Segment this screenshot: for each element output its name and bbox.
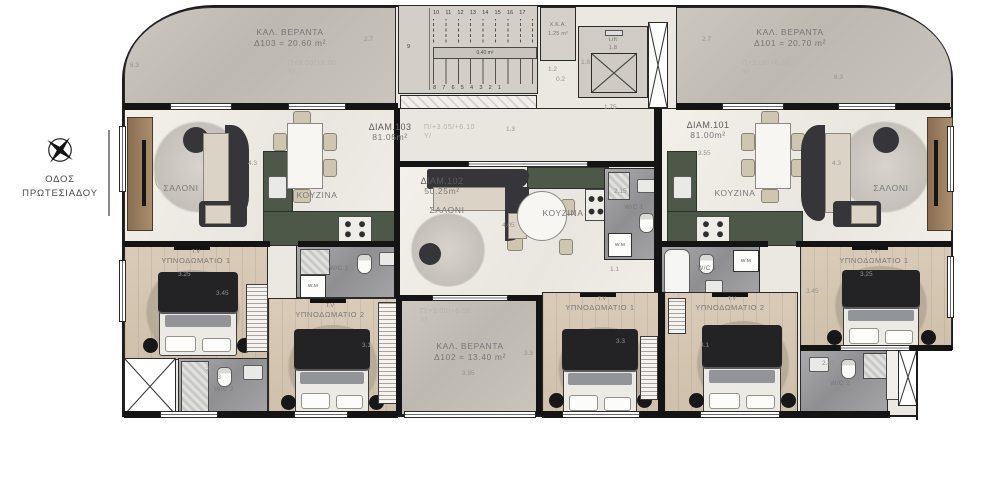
stair-landing-line — [429, 8, 430, 90]
lift-dim-side: 1.8 — [581, 59, 590, 66]
room-label-wc1: W/C 1 — [682, 265, 732, 272]
stair-step-9: 9 — [407, 44, 410, 50]
entrance-canopy — [400, 95, 537, 109]
stair-steps-upper-numbers: 10 11 12 13 14 15 16 17 — [433, 10, 525, 16]
tv-unit — [127, 117, 153, 231]
dining-chair — [741, 159, 755, 177]
corridor-level: Π/+3.05/+6.10 — [424, 124, 475, 131]
bed — [295, 331, 369, 413]
nightstand — [921, 330, 936, 345]
washing-machine: W.M — [733, 250, 759, 272]
bathtub — [664, 249, 690, 297]
dim: 3.3 — [524, 350, 533, 357]
bed-fold — [165, 315, 232, 327]
dining-chair — [559, 239, 573, 255]
wall-segment — [658, 292, 665, 415]
room-label-salon: ΣΑΛΟΝΙ — [856, 184, 926, 194]
common-corridor — [398, 108, 660, 166]
nightstand — [827, 330, 842, 345]
dim: 3.1 — [700, 342, 709, 349]
street-label-block: ΟΔΟΣ ΠΡΩΤΕΣΙΑΔΟΥ — [12, 132, 108, 202]
dining-table — [287, 123, 323, 189]
wall-segment — [124, 103, 170, 110]
core-dim-a: 1.2 — [548, 66, 557, 73]
wall-segment — [654, 245, 662, 292]
room-label-salon: ΣΑΛΟΝΙ — [146, 184, 216, 194]
dim: 3.1 — [362, 342, 371, 349]
bed-blanket — [294, 329, 370, 369]
balcony-left-title: ΚΑΛ. ΒΕΡΑΝΤΑ — [200, 28, 380, 38]
coffee-table-dark — [419, 243, 441, 265]
washing-machine-label: W.M — [615, 243, 625, 248]
toilet — [841, 359, 856, 379]
street-divider-line — [108, 130, 110, 216]
street-name-line1: ΟΔΟΣ — [12, 173, 108, 187]
nightstand — [689, 393, 704, 408]
washing-machine-label: W.M — [308, 284, 318, 289]
bed-pillow — [202, 338, 231, 352]
bedroom-tv-label: T.V — [832, 249, 916, 255]
room-label-kitchen: ΚΟΥΖΙΝΑ — [700, 189, 770, 199]
balcony-left-axis: Y/ — [288, 69, 296, 76]
balcony-left — [124, 7, 396, 108]
bed — [159, 274, 237, 356]
sofa-back — [801, 125, 825, 221]
tv-screen — [142, 140, 146, 206]
dim: 2.7 — [702, 36, 711, 43]
dining-chair — [323, 133, 337, 151]
dim: 8.3 — [130, 62, 139, 69]
wall-segment — [218, 411, 294, 418]
basin — [243, 365, 263, 380]
balcony-left-level: Π+3.00/+8.00 — [288, 60, 336, 67]
dim: 2.85 — [206, 366, 219, 373]
dim: 1.1 — [610, 266, 619, 273]
window — [288, 103, 346, 110]
balcony-mid-area: Δ102 = 13.40 m² — [400, 353, 540, 363]
room-label-salon: ΣΑΛΟΝΙ — [412, 206, 482, 216]
stove — [696, 216, 730, 242]
bed — [563, 331, 637, 415]
toilet — [639, 213, 654, 233]
balcony-right-axis: Y/ — [742, 69, 750, 76]
wall-segment — [660, 241, 768, 247]
dim: 4.05 — [502, 222, 515, 229]
nightstand — [281, 395, 296, 410]
window — [700, 411, 780, 418]
dim: 8.3 — [834, 74, 843, 81]
window — [947, 126, 954, 192]
lift-counterweight — [605, 30, 623, 36]
stair-landing-area: 0.40 m² — [477, 50, 494, 56]
stairwell: 10 11 12 13 14 15 16 17 0.40 m² 8 7 6 5 … — [398, 5, 538, 94]
stair-landing: 0.40 m² — [433, 47, 537, 59]
window — [468, 161, 588, 167]
window — [160, 411, 218, 418]
apartment-103-id: ΔΙΑΜ.103 — [350, 122, 430, 132]
bed-pillow — [885, 330, 913, 344]
washing-machine-label: W.M — [741, 259, 751, 264]
dining-chair — [323, 159, 337, 177]
balcony-railing — [404, 411, 536, 418]
wall-segment — [298, 241, 398, 247]
wall-segment — [640, 411, 700, 418]
bedroom-tv-label: T.V — [690, 296, 774, 302]
sofa-chaise-cushion — [205, 205, 231, 224]
bed-fold — [709, 370, 776, 383]
shower — [863, 353, 887, 379]
room-label-bedroom2: ΥΠΝΟΔΩΜΑΤΙΟ 2 — [278, 311, 382, 320]
dim: 4.3 — [248, 160, 257, 167]
dining-chair — [273, 133, 287, 151]
room-label-wc1: W/C 1 — [314, 265, 364, 272]
wall-segment — [542, 411, 562, 418]
lift-label: Lift — [589, 37, 637, 43]
room-label-wc2: W/C 2 — [196, 386, 252, 393]
lift-room: Lift 1.8 1.8 — [578, 26, 648, 98]
bed-pillow — [604, 397, 631, 411]
apartment-102-id: ΔΙΑΜ.102 — [402, 176, 482, 186]
tv-screen — [934, 140, 938, 206]
balcony-right-title: ΚΑΛ. ΒΕΡΑΝΤΑ — [700, 28, 880, 38]
bed-pillow — [709, 393, 740, 409]
sofa-chaise — [833, 201, 881, 227]
compass-icon — [42, 155, 78, 172]
washing-machine: W.M — [300, 275, 326, 298]
wall-segment — [798, 411, 890, 418]
window — [947, 256, 954, 318]
dim: 3.95 — [462, 370, 475, 377]
bed-fold — [568, 373, 631, 385]
shaft-bottom-right — [898, 348, 918, 406]
window — [119, 260, 126, 322]
stair-steps-lower-numbers: 8 7 6 5 4 3 2 1 — [433, 85, 501, 91]
window — [119, 126, 126, 192]
shaft-bottom-left — [124, 358, 176, 415]
dim: 3.55 — [698, 150, 711, 157]
dim: 1.3 — [828, 368, 837, 375]
nightstand — [781, 393, 796, 408]
sofa-chaise-cushion — [851, 205, 877, 224]
dim: 3.45 — [806, 288, 819, 295]
stair-flight-lower — [433, 59, 535, 84]
window — [294, 411, 348, 418]
window — [722, 103, 784, 110]
wall-segment — [784, 103, 838, 110]
kitchen-counter — [527, 167, 609, 189]
building-notch — [916, 350, 958, 420]
nightstand — [549, 393, 564, 408]
dining-table — [755, 123, 791, 189]
stair-flight-upper — [433, 19, 535, 45]
room-label-wc2: W/C 2 — [812, 380, 868, 387]
dim: 4.3 — [832, 160, 841, 167]
room-label-wc1: W/C 1 — [612, 204, 656, 211]
room-label-bedroom1: ΥΠΝΟΔΩΜΑΤΙΟ 1 — [548, 304, 652, 313]
xka-area: 1.25 m² — [541, 31, 575, 37]
floor-plan: ΟΔΟΣ ΠΡΩΤΕΣΙΑΔΟΥ 10 11 12 13 14 15 16 17… — [0, 0, 1000, 500]
dim: 3.25 — [860, 271, 873, 278]
balcony-mid-level: Π/+3.00/+6.00 — [420, 308, 471, 315]
bedroom-tv-label: T.V — [560, 296, 644, 302]
xka-room: X.K.A. 1.25 m² — [540, 7, 576, 61]
dim: 2.15 — [614, 188, 627, 195]
core-dim-b: 0.2 — [556, 76, 565, 83]
bed-pillow — [569, 395, 598, 411]
shower — [608, 172, 630, 200]
room-label-kitchen: ΚΟΥΖΙΝΑ — [282, 191, 352, 201]
street-name-line2: ΠΡΩΤΕΣΙΑΔΟΥ — [12, 187, 108, 201]
wall-segment — [676, 103, 722, 110]
room-label-bedroom1: ΥΠΝΟΔΩΜΑΤΙΟ 1 — [822, 257, 926, 266]
window — [170, 103, 232, 110]
dim: 3.25 — [178, 271, 191, 278]
apartment-102-wc1: W.M — [604, 168, 660, 260]
wall-segment — [346, 103, 398, 110]
apartment-101-id: ΔΙΑΜ.101 — [668, 120, 748, 130]
apartment-103-area: 81.05m² — [350, 133, 430, 143]
core-dim-c: 1.75 — [604, 104, 617, 111]
balcony-mid-axis: Y/ — [420, 317, 428, 324]
balcony-right-level: Π+3.00/+6.00 — [742, 60, 790, 67]
wardrobe — [640, 336, 658, 400]
bed-pillow — [746, 395, 775, 409]
window — [840, 345, 910, 351]
bed-fold — [300, 372, 363, 384]
bed-blanket — [562, 329, 638, 370]
room-label-bedroom1: ΥΠΝΟΔΩΜΑΤΙΟ 1 — [144, 257, 248, 266]
dim: 1.3 — [506, 126, 515, 133]
wardrobe — [246, 284, 268, 352]
nightstand — [143, 338, 158, 353]
wall-segment — [800, 345, 840, 351]
wall-segment — [398, 161, 468, 167]
service-shaft-top — [648, 22, 668, 108]
wall-segment — [124, 411, 160, 418]
apartment-102-area: 50.25m² — [402, 187, 482, 197]
bed-fold — [848, 310, 913, 321]
bed-pillow — [336, 395, 363, 409]
window — [432, 295, 508, 301]
wall-segment — [654, 108, 662, 245]
room-label-bedroom2: ΥΠΝΟΔΩΜΑΤΙΟ 2 — [678, 304, 782, 313]
wall-segment — [896, 103, 950, 110]
kitchen-sink — [673, 176, 692, 199]
wall-segment — [910, 345, 952, 351]
bedroom-tv-label: T.V — [154, 249, 238, 255]
balcony-right-area: Δ101 = 20.70 m² — [700, 39, 880, 49]
wall-segment — [398, 295, 432, 301]
balcony-right — [676, 7, 952, 108]
bed-pillow — [301, 393, 330, 409]
balcony-left-area: Δ103 = 20.60 m² — [200, 39, 380, 49]
stove — [338, 216, 372, 242]
wall-segment — [780, 411, 800, 418]
lift-cab — [591, 53, 637, 93]
bedroom-tv-label: T.V — [288, 303, 372, 309]
dim: 3.45 — [216, 290, 229, 297]
bed-blanket — [702, 325, 782, 367]
dim: 2.85 — [822, 360, 835, 367]
sofa-chaise — [199, 201, 247, 227]
apartment-101-area: 81.00m² — [668, 131, 748, 141]
lift-dim: 1.8 — [589, 45, 637, 51]
wall-segment — [232, 103, 288, 110]
wall-segment — [588, 161, 660, 167]
room-label-kitchen: ΚΟΥΖΙΝΑ — [528, 209, 598, 219]
window — [838, 103, 896, 110]
window — [562, 411, 640, 418]
dim: 2.7 — [364, 36, 373, 43]
dim: 3.3 — [616, 338, 625, 345]
bed-blanket — [842, 270, 920, 307]
bed — [703, 327, 781, 413]
bed-pillow — [165, 336, 196, 352]
xka-title: X.K.A. — [541, 22, 575, 28]
wall-segment — [394, 245, 400, 298]
washing-machine: W.M — [608, 233, 632, 257]
wall-segment — [348, 411, 398, 418]
dim: 1.3 — [212, 374, 221, 381]
coffee-table-dark — [873, 127, 899, 153]
bed-pillow — [849, 328, 879, 344]
bed — [843, 272, 919, 348]
balcony-mid-title: ΚΑΛ. ΒΕΡΑΝΤΑ — [400, 342, 540, 352]
